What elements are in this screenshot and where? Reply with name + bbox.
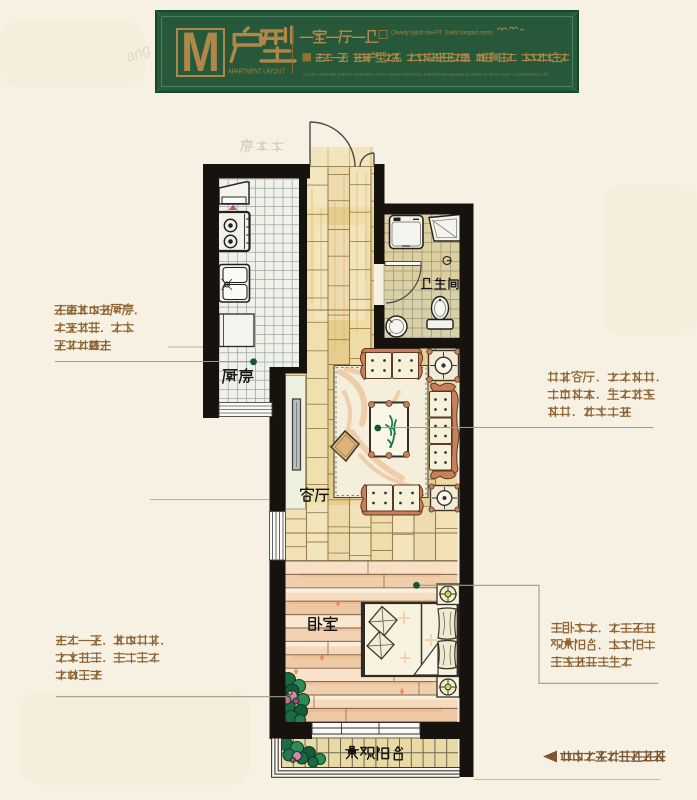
svg-text:M: M [181, 20, 220, 83]
svg-text:LUXURY LIVING ONE COMPACT APA: LUXURY LIVING ONE COMPACT APARTMENT LAYO… [303, 72, 548, 77]
svg-text:APARTMENT LAYOUT: APARTMENT LAYOUT [228, 67, 285, 76]
svg-text:Cleverly stylish one-FIT Usef: Cleverly stylish one-FIT Useful compact … [391, 30, 493, 37]
